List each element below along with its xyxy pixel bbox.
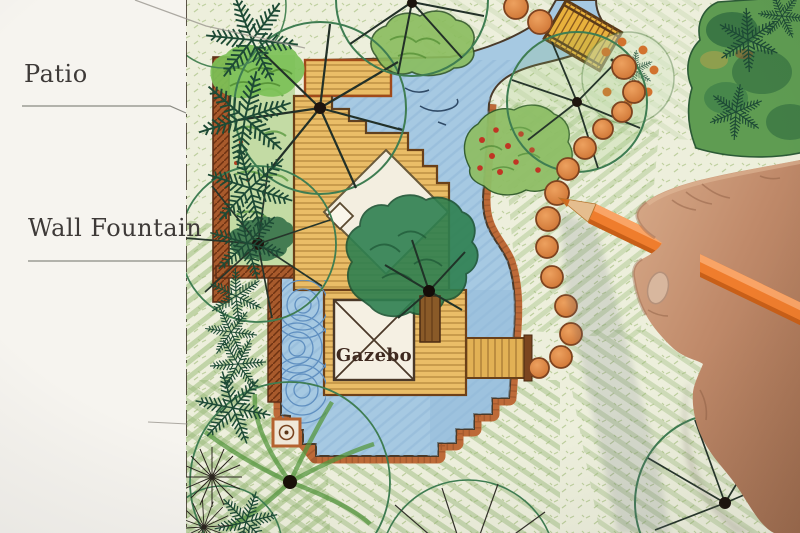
- plan-drawing: Gazebo: [0, 0, 800, 533]
- landscape-plan-photo: Gazebo: [0, 0, 800, 533]
- photo-vignette: [0, 0, 800, 533]
